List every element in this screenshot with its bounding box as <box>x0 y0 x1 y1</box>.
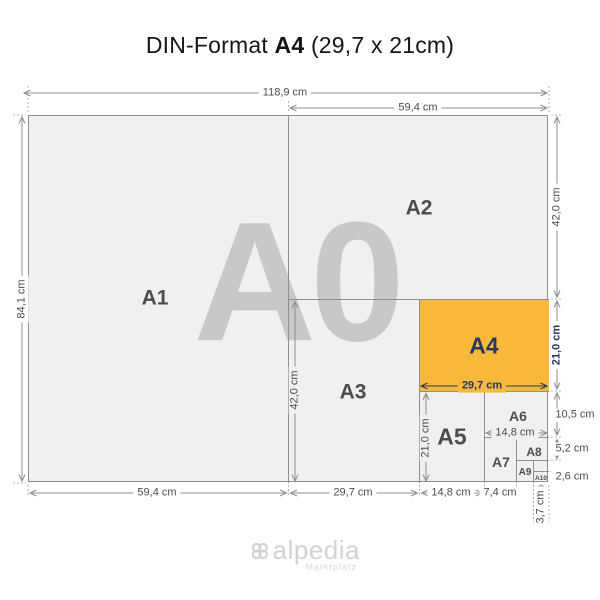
dim-a1-width: 59,4 cm <box>133 487 180 500</box>
dim-a6-width: 14,8 cm <box>491 427 538 440</box>
dim-a10-height: 2,6 cm <box>551 471 592 484</box>
label-a5: A5 <box>437 426 466 449</box>
brand-tagline: Marktplatz <box>305 562 357 572</box>
label-a1: A1 <box>142 288 169 309</box>
dim-a4-width: 29,7 cm <box>458 380 506 393</box>
dim-a3-width: 29,7 cm <box>329 487 376 500</box>
dim-a2-width: 59,4 cm <box>394 102 441 115</box>
label-a8: A8 <box>526 446 541 458</box>
dim-a0-height: 84,1 cm <box>16 275 29 322</box>
dimension-lines <box>22 93 557 493</box>
alpedia-clover-icon <box>250 539 270 563</box>
dim-a7-width: 7,4 cm <box>479 487 520 500</box>
label-a3: A3 <box>340 382 367 403</box>
dim-a2-height: 42,0 cm <box>551 183 564 230</box>
label-a10: A10 <box>535 475 547 482</box>
dim-a4-height: 21,0 cm <box>551 321 564 369</box>
label-a6: A6 <box>509 409 527 423</box>
dim-a5-height: 21,0 cm <box>420 414 433 461</box>
dim-a3-height: 42,0 cm <box>289 366 302 413</box>
footer-logo: alpedia Marktplatz <box>250 535 360 575</box>
dim-a10-width: 3,7 cm <box>535 486 548 527</box>
label-a2: A2 <box>406 198 433 219</box>
dim-a5-width: 14,8 cm <box>427 487 474 500</box>
din-format-infographic: DIN-Format A4 (29,7 x 21cm) A0 <box>0 0 600 600</box>
dim-a0-width: 118,9 cm <box>259 87 311 100</box>
label-a4: A4 <box>469 335 498 358</box>
label-a9: A9 <box>519 468 532 478</box>
dim-a8-height: 5,2 cm <box>551 443 592 456</box>
label-a7: A7 <box>492 455 510 469</box>
dim-a6-height: 10,5 cm <box>551 409 598 422</box>
